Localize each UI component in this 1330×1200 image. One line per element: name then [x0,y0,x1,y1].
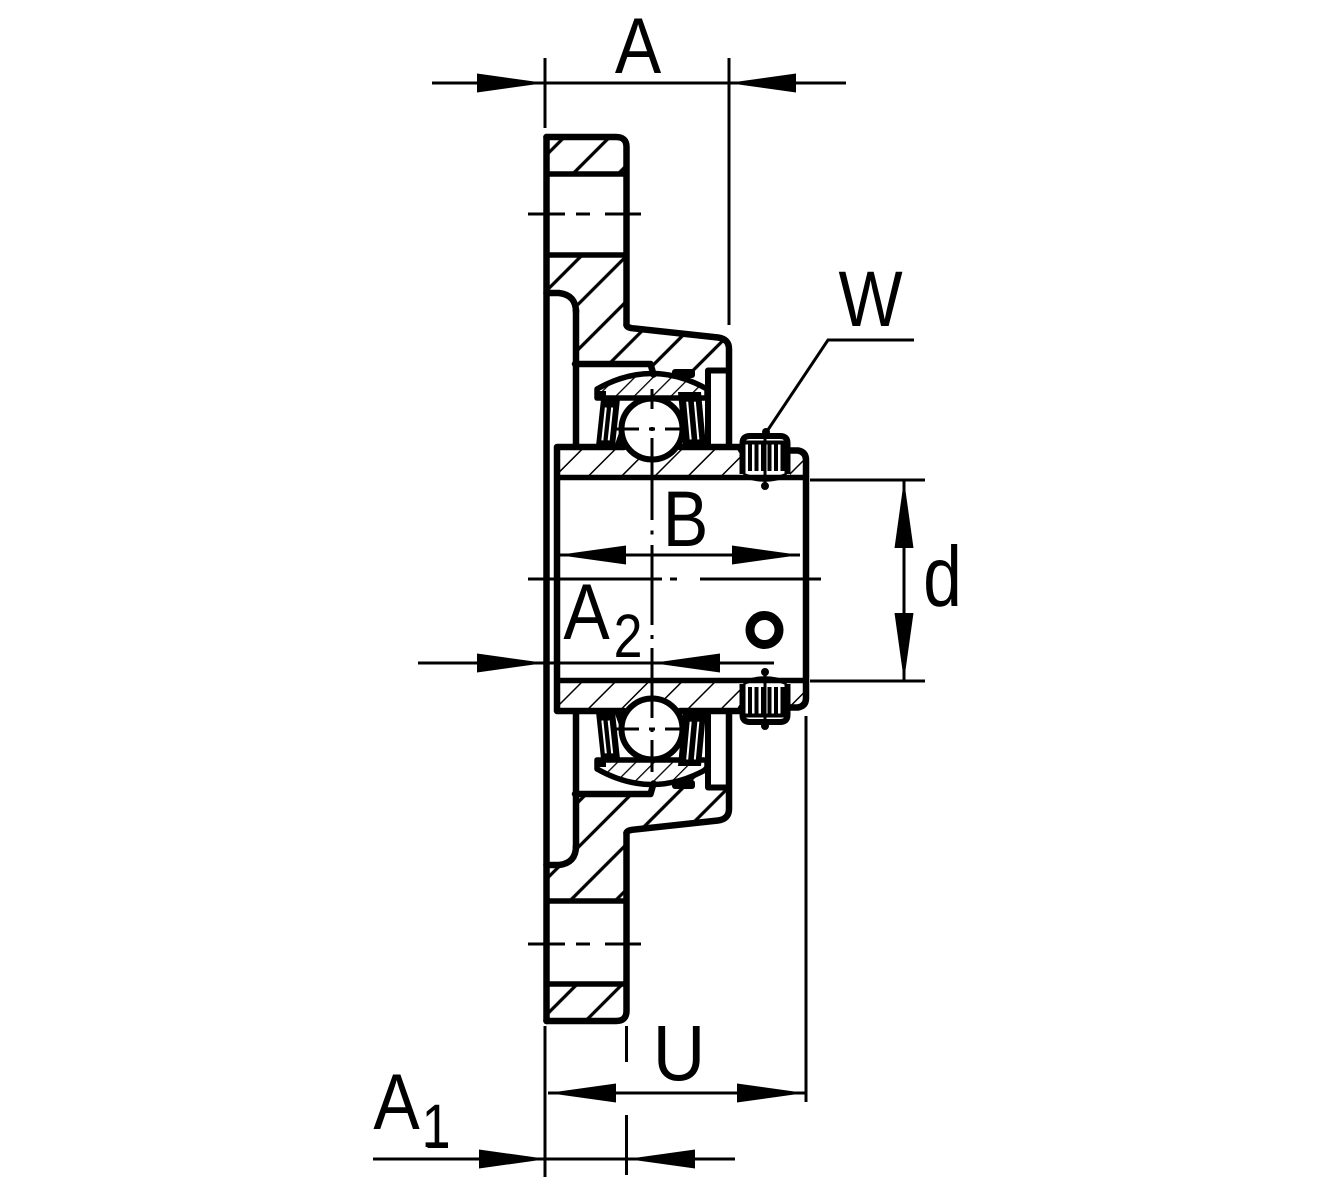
svg-text:d: d [923,531,962,625]
svg-text:B: B [663,474,709,563]
svg-text:2: 2 [614,602,643,670]
svg-text:A: A [615,2,662,90]
svg-text:W: W [838,254,903,343]
svg-text:U: U [653,1009,705,1097]
svg-text:A: A [373,1058,420,1146]
svg-text:1: 1 [422,1092,451,1160]
svg-text:A: A [563,568,610,656]
